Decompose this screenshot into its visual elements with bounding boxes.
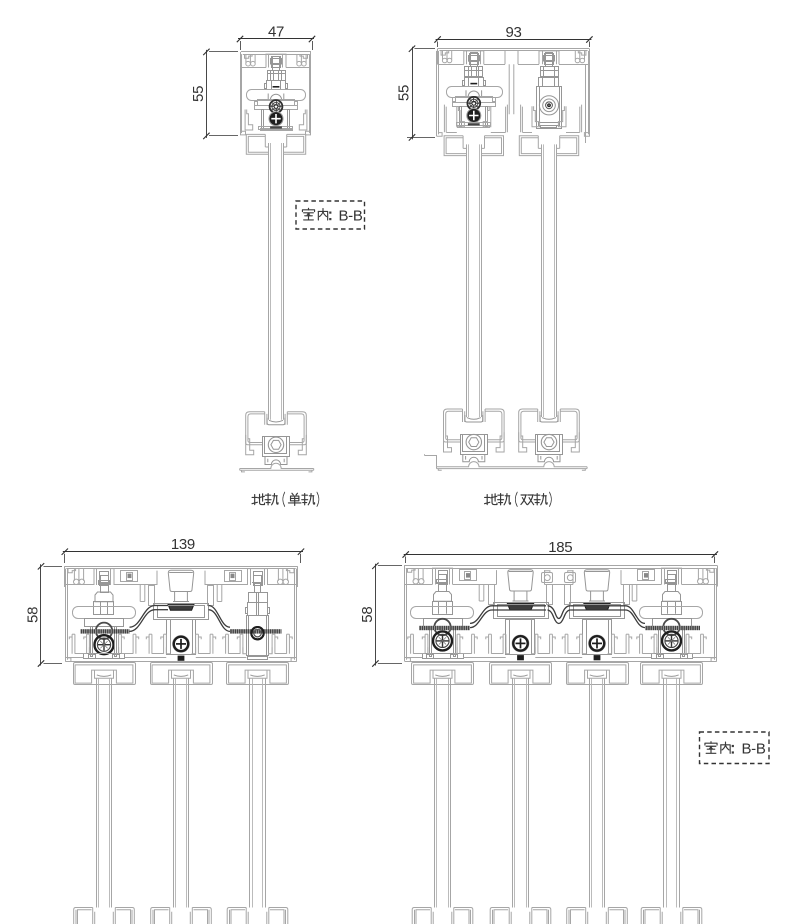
svg-text:47: 47 (268, 23, 284, 40)
svg-text:139: 139 (171, 536, 195, 553)
svg-text:B-B: B-B (338, 207, 362, 224)
svg-text:55: 55 (190, 86, 207, 102)
svg-text:93: 93 (505, 24, 521, 41)
svg-text:B-B: B-B (741, 741, 765, 758)
svg-text:185: 185 (548, 539, 572, 556)
svg-text:58: 58 (25, 607, 42, 623)
svg-text:55: 55 (396, 85, 413, 101)
svg-text:58: 58 (359, 607, 376, 623)
